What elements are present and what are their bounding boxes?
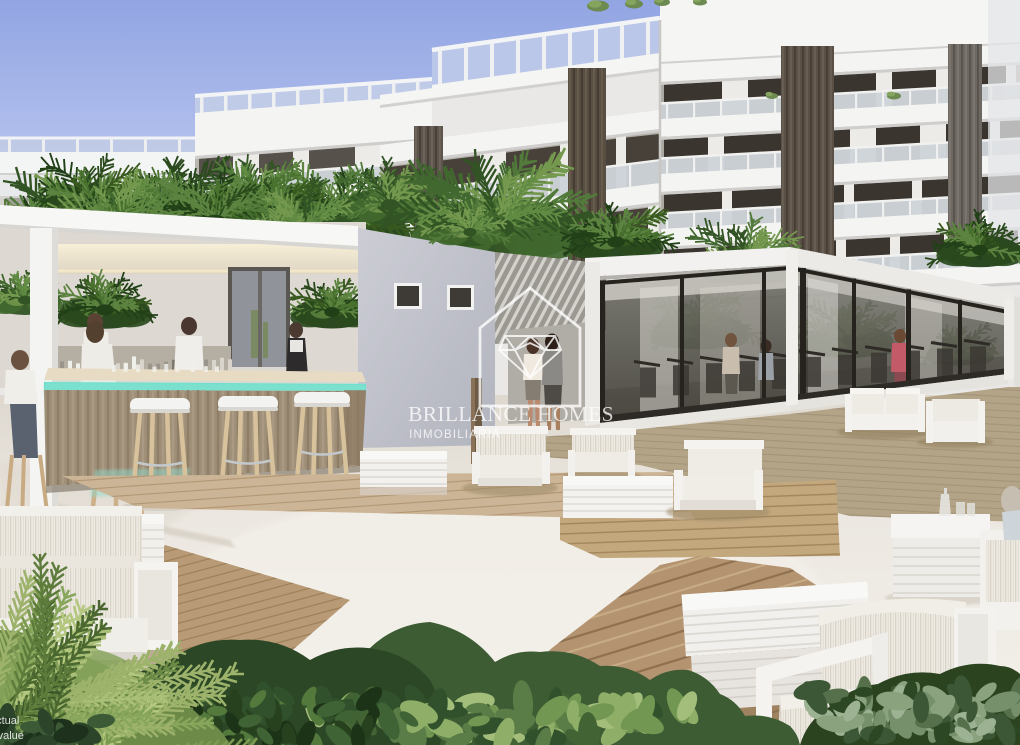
svg-text:INMOBILIARIA: INMOBILIARIA: [409, 429, 501, 441]
svg-text:al value: al value: [0, 730, 24, 742]
svg-text:actual: actual: [0, 715, 19, 727]
svg-text:BRILLANCE HOMES: BRILLANCE HOMES: [408, 402, 614, 426]
